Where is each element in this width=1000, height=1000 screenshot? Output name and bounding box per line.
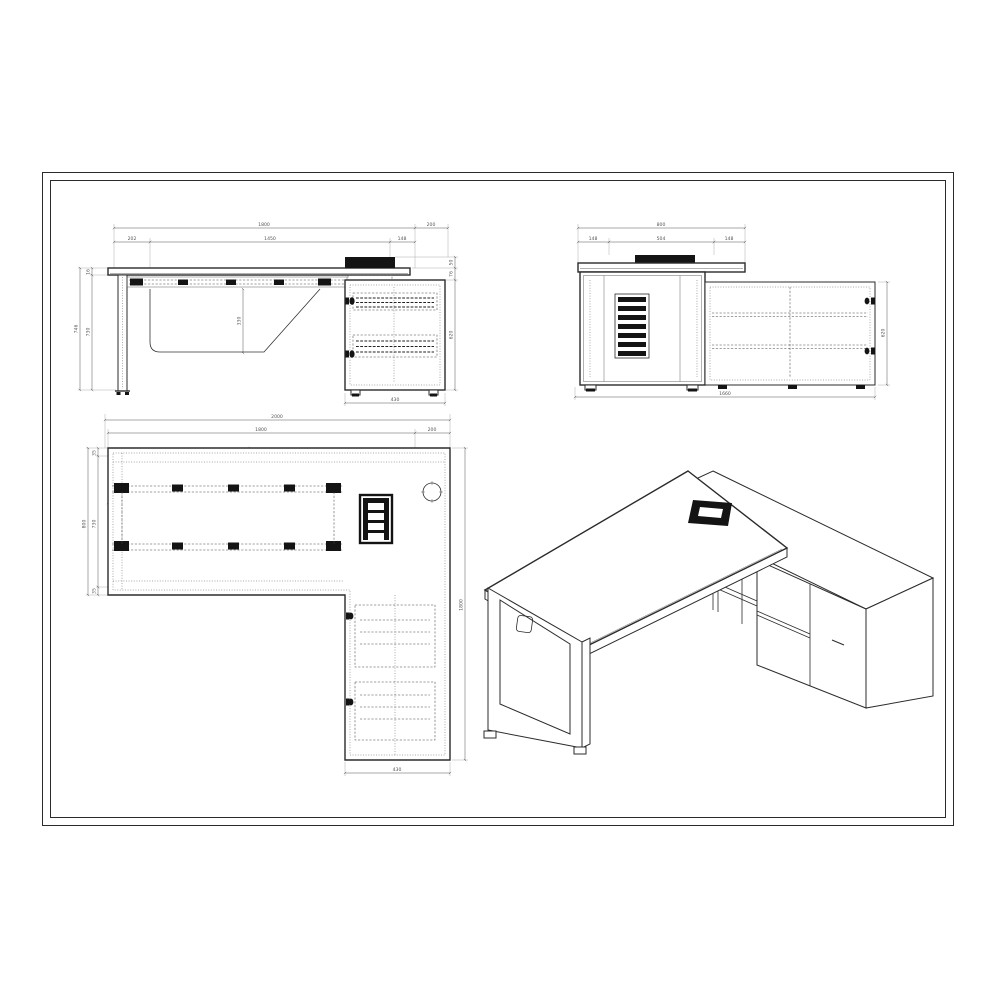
end-elevation-view: 800 148 504 148 620 1660 [560,205,905,420]
hinge-icon [349,350,354,358]
iso-grommet [688,500,732,526]
dim-front-support-height: 330 [237,317,243,326]
dim-plan-edge-bottom: 35 [92,588,98,594]
dim-front-gap: 76 [449,271,455,277]
dim-side-cabinet-length: 1660 [719,391,731,397]
hinge-icon [865,298,870,305]
front-leg [115,275,130,395]
dim-front-cabinet-height: 620 [449,331,455,340]
plan-power-module [360,495,392,543]
dim-front-seg-right: 148 [398,236,407,242]
dim-front-module-height: 50 [449,260,455,266]
dim-plan-return-overhang: 200 [428,427,437,433]
dim-plan-cabinet-depth: 430 [393,767,402,773]
dim-plan-overall-width: 2000 [271,414,283,420]
plan-outline [108,448,450,760]
front-support-panel [150,289,320,352]
hinge-icon [349,297,354,305]
side-pedestal [580,272,705,392]
dim-front-top-overhang: 200 [427,222,436,228]
plan-view: 2000 1800 200 800 35 730 35 1800 143 136… [60,400,480,795]
dim-front-seg-mid: 1450 [264,236,276,242]
drawing-page: 1800 200 202 1450 148 746 16 730 50 76 6… [0,0,1000,1000]
dim-plan-desk-depth: 800 [82,520,88,529]
dim-side-seg-left: 148 [589,236,598,242]
dim-plan-edge-top: 35 [92,450,98,456]
dim-side-cabinet-height: 620 [881,329,887,338]
dim-front-top-total: 1800 [258,222,270,228]
dim-plan-overall-depth: 1800 [459,599,465,611]
dim-plan-inner-depth: 730 [92,520,98,529]
power-module-front [345,257,395,268]
dim-side-seg-right: 148 [725,236,734,242]
dim-side-seg-mid: 504 [657,236,666,242]
dim-front-height-total: 746 [74,325,80,334]
front-elevation-view: 1800 200 202 1450 148 746 16 730 50 76 6… [60,205,470,420]
isometric-view [480,438,950,783]
side-desk-top-end [578,263,745,272]
front-under-rail [127,277,347,287]
dim-front-seg-left: 202 [128,236,137,242]
hinge-icon [865,348,870,355]
front-cabinet [345,280,445,397]
dim-front-top-thickness: 16 [86,269,92,275]
dim-plan-desk-width: 1800 [255,427,267,433]
side-cabinet [705,282,875,389]
dim-side-top-total: 800 [657,222,666,228]
dim-front-leg-height: 730 [86,328,92,337]
power-module-side [635,255,695,263]
